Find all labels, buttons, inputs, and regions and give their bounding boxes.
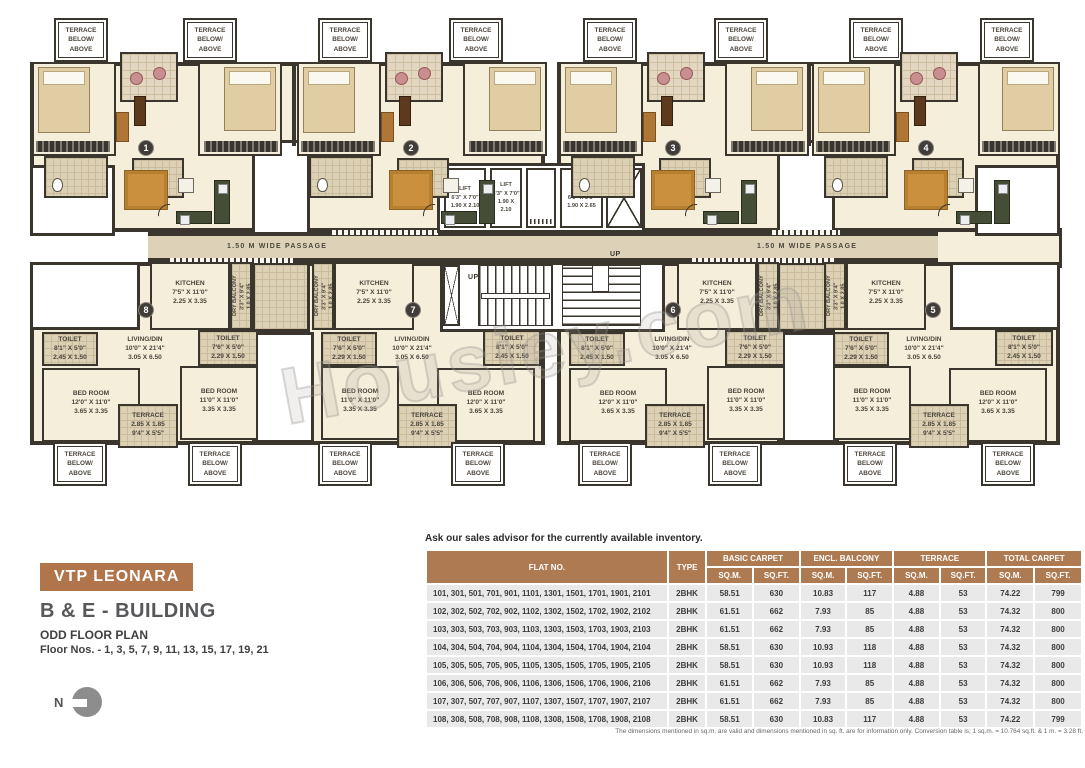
sitout-terrace — [385, 52, 443, 102]
fridge-icon — [705, 178, 721, 193]
col-sqm: SQ.M. — [801, 568, 846, 583]
terrace-room: TERRACE2.85 X 1.859'4" X 5'5" — [118, 404, 178, 448]
col-flat: FLAT NO. — [427, 551, 667, 583]
col-sqm: SQ.M. — [987, 568, 1033, 583]
terrace-note-box: TERRACE BELOW/ ABOVE — [843, 442, 897, 486]
unit-number-badge: 1 — [138, 140, 154, 156]
terrace-note-box: TERRACE BELOW/ ABOVE — [451, 442, 505, 486]
unit-5-bottom: DRY BALCONY3'3" X 9'4"1.0 X 2.85 KITCHEN… — [809, 262, 1059, 445]
window-strip-icon — [330, 230, 440, 235]
table-footnote: The dimensions mentioned in sq.m. are va… — [425, 728, 1083, 735]
north-compass-notch — [66, 699, 87, 707]
kitchen-counter-icon — [956, 211, 992, 224]
room-label: KITCHEN7'5" X 11'0"2.25 X 3.35 — [152, 280, 228, 307]
toilet-room: TOILET8'1" X 5'0"2.45 X 1.50 — [569, 332, 625, 366]
unit-6-bottom: KITCHEN7'5" X 11'0"2.25 X 3.35 DRY BALCO… — [559, 262, 809, 445]
bedroom-room — [32, 62, 116, 156]
terrace-note-box: TERRACE BELOW/ ABOVE — [188, 442, 242, 486]
terrace-note-box: TERRACE BELOW/ ABOVE — [583, 18, 637, 62]
col-sqft: SQ.FT. — [941, 568, 986, 583]
wardrobe-icon — [731, 141, 805, 152]
dry-balcony-room: DRY BALCONY3'3" X 9'4"1.0 X 2.85 — [230, 262, 252, 330]
dining-table-icon — [389, 170, 433, 210]
kitchen-room: KITCHEN7'5" X 11'0"2.25 X 3.35 — [846, 262, 926, 330]
room-label: BED ROOM11'0" X 11'0"3.35 X 3.35 — [182, 388, 256, 415]
tv-unit-icon — [914, 96, 926, 126]
room-label: TOILET7'6" X 5'0"2.29 X 1.50 — [727, 335, 783, 362]
terrace-note-box: TERRACE BELOW/ ABOVE — [849, 18, 903, 62]
living-label: LIVING/DIN10'0" X 21'4"3.05 X 6.50 — [627, 336, 717, 363]
wardrobe-icon — [469, 141, 543, 152]
living-label: LIVING/DIN10'0" X 21'4"3.05 X 6.50 — [367, 336, 457, 363]
kitchen-room: KITCHEN7'5" X 11'0"2.25 X 3.35 — [150, 262, 230, 330]
col-encl: ENCL. BALCONY — [801, 551, 892, 566]
toilet-room — [309, 156, 373, 198]
bed-icon — [224, 67, 276, 131]
bed-icon — [38, 67, 90, 133]
bed-icon — [818, 67, 870, 133]
table-row: 107, 307, 507, 707, 907, 1107, 1307, 150… — [427, 693, 1081, 709]
fridge-icon — [958, 178, 974, 193]
kitchen-counter-icon — [441, 211, 477, 224]
window-strip-icon — [770, 230, 840, 235]
toilet-room: TOILET8'1" X 5'0"2.45 X 1.50 — [42, 332, 98, 366]
unit-4-top: 4 — [812, 62, 1062, 228]
header-row: FLAT NO. TYPE BASIC CARPET ENCL. BALCONY… — [427, 551, 1081, 566]
dry-balcony-room: DRY BALCONY3'3" X 9'4"1.0 X 2.85 — [824, 262, 846, 330]
room-label: TOILET8'1" X 5'0"2.45 X 1.50 — [485, 335, 539, 362]
col-sqm: SQ.M. — [707, 568, 752, 583]
terrace-room: TERRACE2.85 X 1.859'4" X 5'5" — [645, 404, 705, 448]
tv-unit-icon — [661, 96, 673, 126]
floor-plan: TERRACE BELOW/ ABOVE TERRACE BELOW/ ABOV… — [0, 0, 1085, 520]
sofa-icon — [643, 112, 656, 142]
unit-1-top: 1 — [32, 62, 282, 228]
room-label: KITCHEN7'5" X 11'0"2.25 X 3.35 — [848, 280, 924, 307]
unit-number-badge: 7 — [405, 302, 421, 318]
kitchen-counter-icon — [214, 180, 230, 224]
table-row: 108, 308, 508, 708, 908, 1108, 1308, 150… — [427, 711, 1081, 727]
dining-table-icon — [651, 170, 695, 210]
passage-label: 1.50 M WIDE PASSAGE — [757, 243, 857, 250]
col-sqft: SQ.FT. — [754, 568, 799, 583]
unit-number-badge: 6 — [665, 302, 681, 318]
unit-3-top: 3 — [559, 62, 809, 228]
terrace-note-box: TERRACE BELOW/ ABOVE — [318, 18, 372, 62]
room-label: DRY BALCONY3'3" X 9'4"1.0 X 2.85 — [314, 266, 332, 326]
room-label: TERRACE2.85 X 1.859'4" X 5'5" — [399, 412, 455, 439]
toilet-room — [824, 156, 888, 198]
plan-type-label: ODD FLOOR PLAN — [40, 628, 148, 642]
bed-icon — [489, 67, 541, 131]
room-label: TOILET8'1" X 5'0"2.45 X 1.50 — [997, 335, 1051, 362]
inventory-note: Ask our sales advisor for the currently … — [425, 533, 703, 544]
room-label: TERRACE2.85 X 1.859'4" X 5'5" — [647, 412, 703, 439]
wall — [292, 66, 296, 146]
room-label: BED ROOM11'0" X 11'0"3.35 X 3.35 — [323, 388, 397, 415]
tv-unit-icon — [399, 96, 411, 126]
unit-number-badge: 5 — [925, 302, 941, 318]
bedroom-room — [198, 62, 282, 156]
dry-balcony-room: DRY BALCONY3'3" X 9'4"1.0 X 2.85 — [757, 262, 779, 330]
room-label: KITCHEN7'5" X 11'0"2.25 X 3.35 — [679, 280, 755, 307]
bedroom-room — [463, 62, 547, 156]
bed-icon — [1002, 67, 1054, 131]
living-label: LIVING/DIN10'0" X 21'4"3.05 X 6.50 — [879, 336, 969, 363]
dining-table-icon — [124, 170, 168, 210]
living-label: LIVING/DIN10'0" X 21'4"3.05 X 6.50 — [100, 336, 190, 363]
unit-8-bottom: KITCHEN7'5" X 11'0"2.25 X 3.35 DRY BALCO… — [32, 262, 282, 445]
toilet-room — [571, 156, 635, 198]
wardrobe-icon — [36, 141, 110, 152]
table-row: 103, 303, 503, 703, 903, 1103, 1303, 150… — [427, 621, 1081, 637]
kitchen-counter-icon — [176, 211, 212, 224]
terrace-note-box: TERRACE BELOW/ ABOVE — [54, 18, 108, 62]
bedroom-room — [812, 62, 896, 156]
dry-balcony-room: DRY BALCONY3'3" X 9'4"1.0 X 2.85 — [312, 262, 334, 330]
terrace-note-box: TERRACE BELOW/ ABOVE — [708, 442, 762, 486]
room-label: DRY BALCONY3'3" X 9'4"1.0 X 2.85 — [826, 266, 844, 326]
up-label: UP — [610, 251, 621, 258]
col-sqm: SQ.M. — [894, 568, 939, 583]
terrace-note-box: TERRACE BELOW/ ABOVE — [980, 18, 1034, 62]
bedroom-room: BED ROOM11'0" X 11'0"3.35 X 3.35 — [707, 366, 785, 440]
fridge-icon — [178, 178, 194, 193]
bedroom-room: BED ROOM11'0" X 11'0"3.35 X 3.35 — [833, 366, 911, 440]
unit-number-badge: 4 — [918, 140, 934, 156]
dining-table-icon — [904, 170, 948, 210]
wardrobe-icon — [816, 141, 890, 152]
sitout-terrace — [900, 52, 958, 102]
kitchen-counter-icon — [741, 180, 757, 224]
room-label: BED ROOM11'0" X 11'0"3.35 X 3.35 — [835, 388, 909, 415]
wardrobe-icon — [301, 141, 375, 152]
unit-number-badge: 8 — [138, 302, 154, 318]
inventory-table: FLAT NO. TYPE BASIC CARPET ENCL. BALCONY… — [425, 549, 1083, 729]
room-label: TERRACE2.85 X 1.859'4" X 5'5" — [911, 412, 967, 439]
sofa-icon — [116, 112, 129, 142]
terrace-note-box: TERRACE BELOW/ ABOVE — [714, 18, 768, 62]
unit-number-badge: 3 — [665, 140, 681, 156]
table-row: 101, 301, 501, 701, 901, 1101, 1301, 150… — [427, 585, 1081, 601]
toilet-room — [44, 156, 108, 198]
bedroom-room — [297, 62, 381, 156]
kitchen-counter-icon — [703, 211, 739, 224]
terrace-note-box: TERRACE BELOW/ ABOVE — [578, 442, 632, 486]
toilet-room: TOILET8'1" X 5'0"2.45 X 1.50 — [483, 330, 541, 366]
terrace-note-box: TERRACE BELOW/ ABOVE — [183, 18, 237, 62]
col-type: TYPE — [669, 551, 706, 583]
col-terrace: TERRACE — [894, 551, 985, 566]
toilet-room: TOILET7'6" X 5'0"2.29 X 1.50 — [725, 330, 785, 366]
fridge-icon — [443, 178, 459, 193]
bed-icon — [751, 67, 803, 131]
kitchen-counter-icon — [994, 180, 1010, 224]
north-label: N — [54, 695, 63, 710]
kitchen-room: KITCHEN7'5" X 11'0"2.25 X 3.35 — [677, 262, 757, 330]
kitchen-room: KITCHEN7'5" X 11'0"2.25 X 3.35 — [334, 262, 414, 330]
bedroom-room: BED ROOM11'0" X 11'0"3.35 X 3.35 — [180, 366, 258, 440]
passage-label: 1.50 M WIDE PASSAGE — [227, 243, 327, 250]
wardrobe-icon — [204, 141, 278, 152]
sitout-terrace — [647, 52, 705, 102]
terrace-room: TERRACE2.85 X 1.859'4" X 5'5" — [909, 404, 969, 448]
col-sqft: SQ.FT. — [1035, 568, 1081, 583]
bedroom-room — [978, 62, 1060, 156]
wardrobe-icon — [563, 141, 637, 152]
sitout-terrace — [120, 52, 178, 102]
terrace-note-box: TERRACE BELOW/ ABOVE — [318, 442, 372, 486]
toilet-room: TOILET8'1" X 5'0"2.45 X 1.50 — [995, 330, 1053, 366]
bed-icon — [303, 67, 355, 133]
terrace-room: TERRACE2.85 X 1.859'4" X 5'5" — [397, 404, 457, 448]
unit-7-bottom: DRY BALCONY3'3" X 9'4"1.0 X 2.85 KITCHEN… — [297, 262, 547, 445]
col-basic: BASIC CARPET — [707, 551, 798, 566]
table-row: 104, 304, 504, 704, 904, 1104, 1304, 150… — [427, 639, 1081, 655]
sofa-icon — [896, 112, 909, 142]
wardrobe-icon — [982, 141, 1056, 152]
table-row: 105, 305, 505, 705, 905, 1105, 1305, 150… — [427, 657, 1081, 673]
room-label: TOILET8'1" X 5'0"2.45 X 1.50 — [571, 336, 623, 363]
bedroom-room: BED ROOM11'0" X 11'0"3.35 X 3.35 — [321, 366, 399, 440]
bed-icon — [565, 67, 617, 133]
toilet-room: TOILET7'6" X 5'0"2.29 X 1.50 — [198, 330, 258, 366]
col-sqft: SQ.FT. — [847, 568, 892, 583]
terrace-note-box: TERRACE BELOW/ ABOVE — [53, 442, 107, 486]
unit-2-top: 2 — [297, 62, 547, 228]
table-row: 102, 302, 502, 702, 902, 1102, 1302, 150… — [427, 603, 1081, 619]
tv-unit-icon — [134, 96, 146, 126]
room-label: TOILET8'1" X 5'0"2.45 X 1.50 — [44, 336, 96, 363]
floor-numbers-label: Floor Nos. - 1, 3, 5, 7, 9, 11, 13, 15, … — [40, 644, 269, 656]
building-title: B & E - BUILDING — [40, 600, 216, 623]
room-label: TOILET7'6" X 5'0"2.29 X 1.50 — [200, 335, 256, 362]
room-label: BED ROOM11'0" X 11'0"3.35 X 3.35 — [709, 388, 783, 415]
sofa-icon — [381, 112, 394, 142]
kitchen-counter-icon — [479, 180, 495, 224]
bedroom-room — [559, 62, 643, 156]
room-label: TERRACE2.85 X 1.859'4" X 5'5" — [120, 412, 176, 439]
bedroom-room — [725, 62, 809, 156]
room-label: DRY BALCONY3'3" X 9'4"1.0 X 2.85 — [759, 266, 777, 326]
room-label: KITCHEN7'5" X 11'0"2.25 X 3.35 — [336, 280, 412, 307]
unit-number-badge: 2 — [403, 140, 419, 156]
room-label: DRY BALCONY3'3" X 9'4"1.0 X 2.85 — [232, 266, 250, 326]
terrace-note-box: TERRACE BELOW/ ABOVE — [449, 18, 503, 62]
terrace-note-box: TERRACE BELOW/ ABOVE — [981, 442, 1035, 486]
table-row: 106, 306, 506, 706, 906, 1106, 1306, 150… — [427, 675, 1081, 691]
col-total: TOTAL CARPET — [987, 551, 1081, 566]
project-title-badge: VTP LEONARA — [40, 563, 193, 591]
